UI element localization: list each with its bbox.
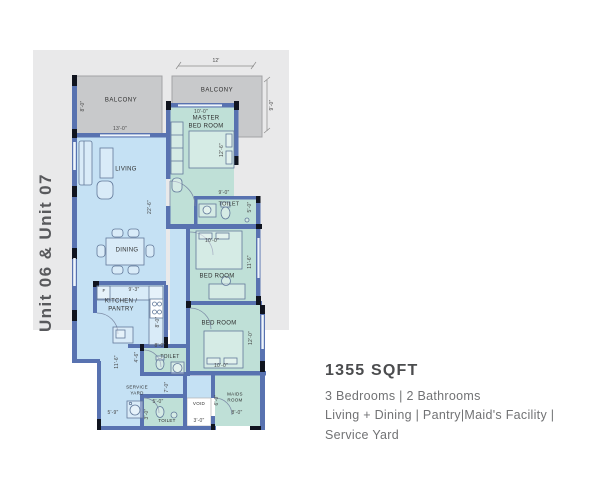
room-label-service-yard: SERVICE YARD bbox=[123, 384, 151, 395]
detail-line-2: Living + Dining | Pantry|Maid's Facility… bbox=[325, 406, 587, 425]
detail-line-3: Service Yard bbox=[325, 426, 587, 445]
dim-bedroom2-h: 12'-0" bbox=[248, 331, 254, 345]
dim-bedroom1-h: 11'-6" bbox=[247, 255, 253, 269]
dim-kitchen-w: 9'-3" bbox=[129, 287, 140, 293]
dim-living-w: 13'-0" bbox=[113, 126, 127, 132]
dim-bedroom1-w: 10'-0" bbox=[205, 238, 219, 244]
dim-service-yard-h: 11'-6" bbox=[114, 355, 120, 369]
fridge-label: F bbox=[102, 288, 105, 294]
dim-void-w: 3'-0" bbox=[194, 418, 205, 424]
room-label-dining: DINING bbox=[116, 247, 139, 255]
dim-toilet-master-h: 5'-0" bbox=[247, 202, 253, 213]
area-value: 1355 SQFT bbox=[325, 362, 587, 380]
dim-toilet-kitchen-w: 8'-0" bbox=[155, 343, 166, 349]
dim-master-w: 10'-0" bbox=[194, 109, 208, 115]
service-yard-fixtures bbox=[127, 401, 143, 418]
room-label-balcony-left: BALCONY bbox=[105, 97, 137, 105]
room-label-living: LIVING bbox=[115, 166, 136, 174]
dim-toilet-small-w: 5'-0" bbox=[153, 399, 164, 405]
dim-toilet-kitchen-h: 4'-6" bbox=[134, 352, 140, 363]
detail-line-1: 3 Bedrooms | 2 Bathrooms bbox=[325, 387, 587, 406]
dim-maids-h: 6'-0" bbox=[214, 395, 220, 406]
dim-kitchen-h: 8'-0" bbox=[155, 317, 161, 328]
floor-plan-sheet: Unit 06 & Unit 07 BALCONY BALCONY LIVING… bbox=[0, 0, 600, 492]
dim-service-yard-w: 5'-9" bbox=[108, 410, 119, 416]
dim-corridor-h: 7'-0" bbox=[164, 382, 170, 393]
room-label-bedroom1: BED ROOM bbox=[199, 273, 234, 281]
room-label-balcony-top: BALCONY bbox=[201, 87, 233, 95]
room-label-bedroom2: BED ROOM bbox=[201, 320, 236, 328]
dim-balcony-top-w: 12' bbox=[212, 58, 219, 64]
dim-balcony-top-h: 9'-0" bbox=[269, 100, 275, 111]
dim-bedroom2-w: 10'-0" bbox=[214, 363, 228, 369]
dim-master-h: 12'-6" bbox=[219, 143, 225, 157]
dim-toilet-small-h: 3'-0" bbox=[144, 409, 150, 420]
room-label-kitchen: KITCHEN / PANTRY bbox=[99, 299, 143, 314]
unit-title: Unit 06 & Unit 07 bbox=[36, 173, 56, 332]
unit-details: 1355 SQFT 3 Bedrooms | 2 Bathrooms Livin… bbox=[325, 362, 587, 445]
room-label-master: MASTER BED ROOM bbox=[187, 116, 225, 131]
room-label-void: VOID bbox=[193, 401, 205, 407]
room-label-toilet-small: TOILET bbox=[158, 418, 175, 424]
room-label-maids: MAIDS ROOM bbox=[222, 391, 248, 402]
dim-living-h: 22'-6" bbox=[147, 200, 153, 214]
dim-maids-w: 8'-0" bbox=[232, 410, 243, 416]
room-label-toilet-kitchen: TOILET bbox=[160, 354, 179, 360]
room-label-toilet-master: TOILET bbox=[219, 202, 240, 209]
dim-toilet-master-w: 9'-0" bbox=[219, 190, 230, 196]
dim-balcony-left-h: 8'-0" bbox=[80, 101, 86, 112]
